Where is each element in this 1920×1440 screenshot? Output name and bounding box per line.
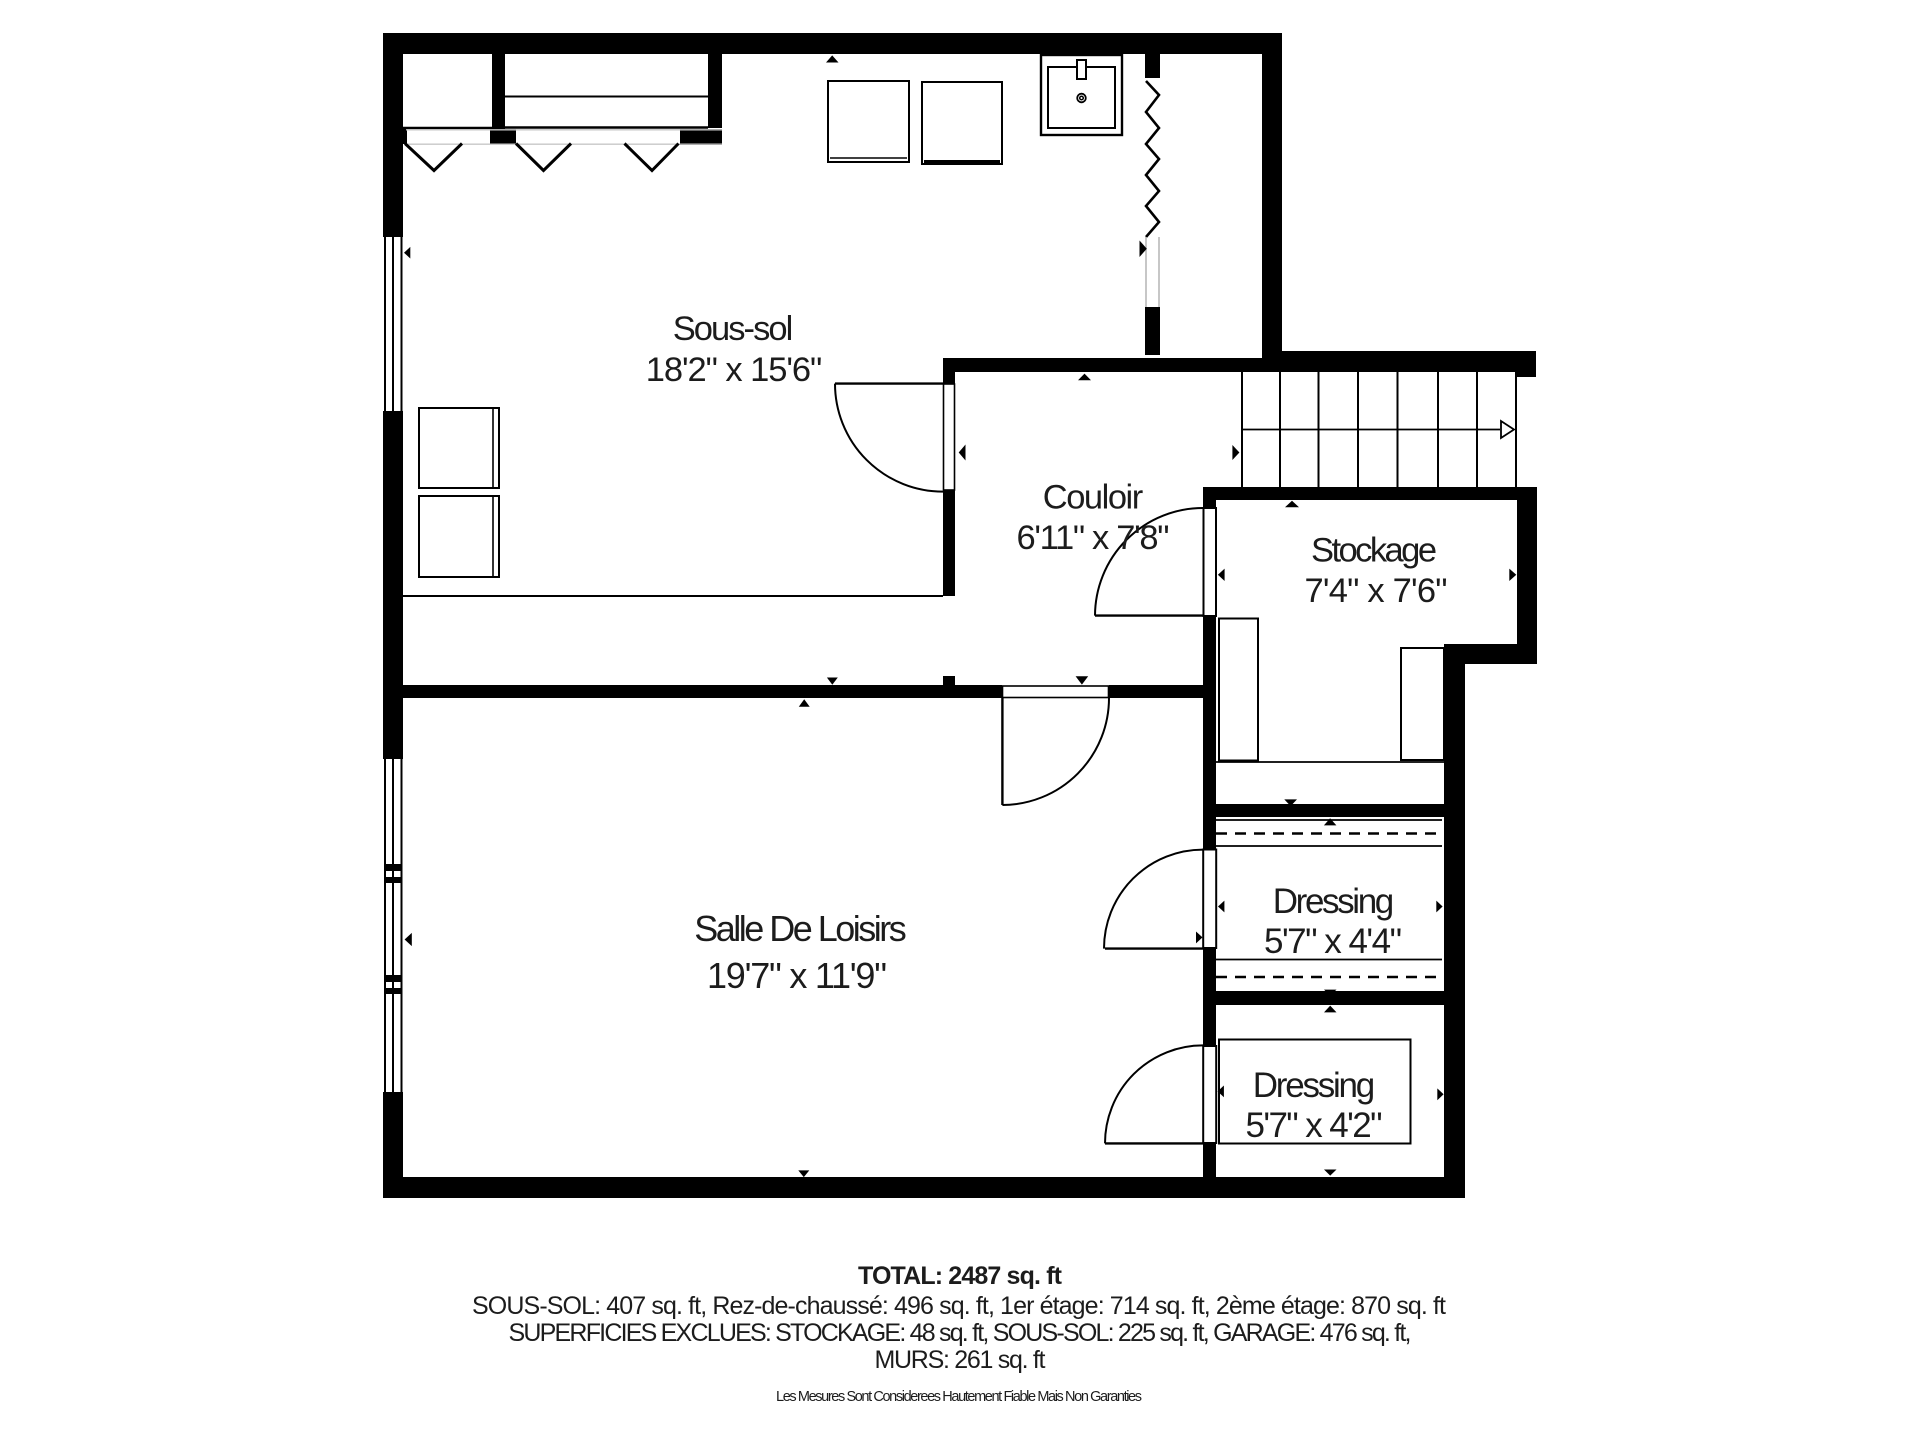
svg-text:Salle De Loisirs: Salle De Loisirs bbox=[694, 908, 907, 949]
svg-text:Dressing: Dressing bbox=[1253, 1066, 1376, 1105]
svg-text:19'7" x 11'9": 19'7" x 11'9" bbox=[707, 955, 887, 996]
svg-text:SUPERFICIES EXCLUES: STOCKAGE:: SUPERFICIES EXCLUES: STOCKAGE: 48 sq. ft… bbox=[509, 1319, 1412, 1347]
svg-text:18'2" x 15'6": 18'2" x 15'6" bbox=[646, 351, 823, 389]
svg-text:6'11" x 7'8": 6'11" x 7'8" bbox=[1017, 519, 1170, 557]
svg-text:SOUS-SOL: 407 sq. ft, Rez-de-c: SOUS-SOL: 407 sq. ft, Rez-de-chaussé: 49… bbox=[472, 1292, 1446, 1320]
svg-text:Couloir: Couloir bbox=[1043, 479, 1144, 517]
svg-text:Dressing: Dressing bbox=[1273, 882, 1395, 921]
svg-text:Stockage: Stockage bbox=[1311, 532, 1437, 570]
svg-text:5'7" x 4'4": 5'7" x 4'4" bbox=[1264, 922, 1402, 961]
svg-text:Sous-sol: Sous-sol bbox=[673, 310, 794, 348]
svg-text:TOTAL: 2487 sq. ft: TOTAL: 2487 sq. ft bbox=[858, 1262, 1063, 1290]
svg-text:Les Mesures Sont Considerees H: Les Mesures Sont Considerees Hautement F… bbox=[776, 1389, 1142, 1405]
svg-text:MURS: 261 sq. ft: MURS: 261 sq. ft bbox=[875, 1346, 1046, 1374]
svg-text:5'7" x 4'2": 5'7" x 4'2" bbox=[1246, 1106, 1383, 1145]
svg-text:7'4" x 7'6": 7'4" x 7'6" bbox=[1305, 572, 1448, 610]
